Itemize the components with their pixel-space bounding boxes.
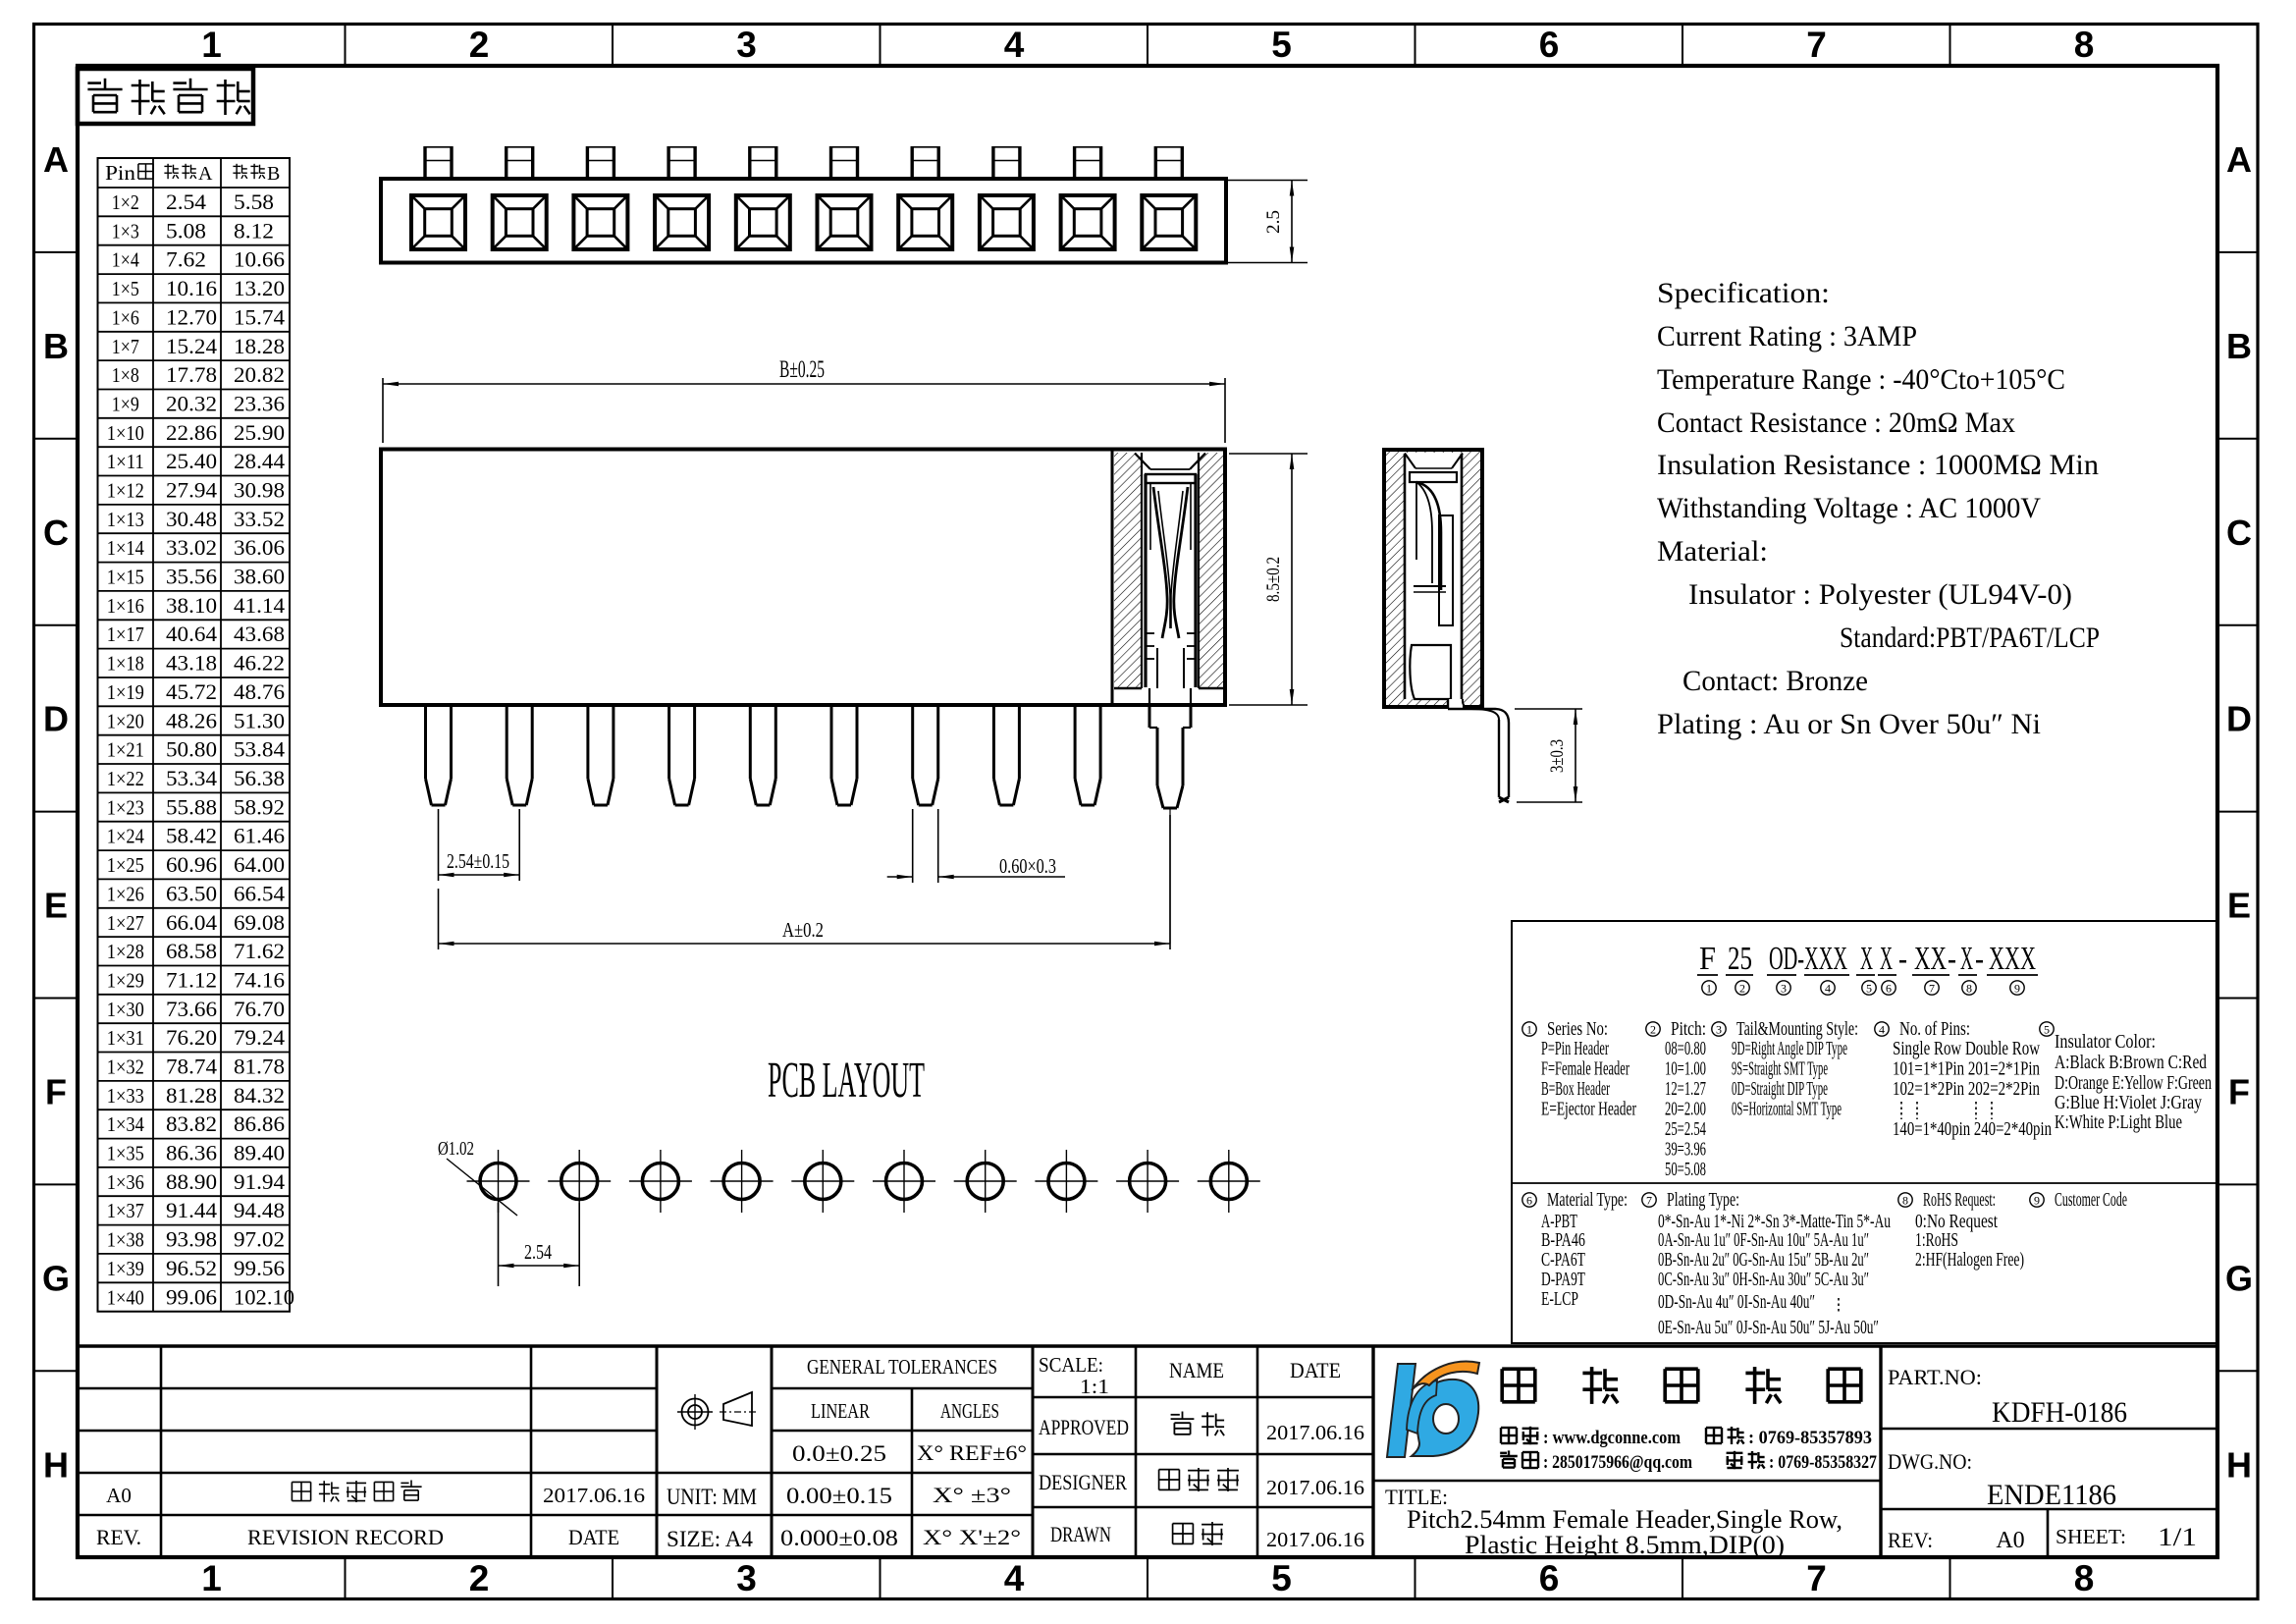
svg-text:B: B	[43, 326, 69, 366]
svg-text:6: 6	[1526, 1193, 1532, 1207]
svg-text:2.54±0.15: 2.54±0.15	[447, 849, 509, 873]
svg-text:KDFH-0186: KDFH-0186	[1992, 1396, 2127, 1429]
svg-text:4: 4	[1004, 25, 1025, 65]
svg-text:0.00±0.15: 0.00±0.15	[786, 1484, 892, 1508]
svg-text:0C-Sn-Au 3u″ 0H-Sn-Au 30u″ 5C: 0C-Sn-Au 3u″ 0H-Sn-Au 30u″ 5C-Au 3u″	[1658, 1270, 1869, 1290]
svg-text:0D-Sn-Au 4u″ 0I-Sn-Au 40u″: 0D-Sn-Au 4u″ 0I-Sn-Au 40u″	[1658, 1292, 1815, 1313]
svg-text:74.16: 74.16	[234, 968, 285, 993]
svg-text:88.90: 88.90	[166, 1169, 217, 1194]
svg-text:1×36: 1×36	[107, 1170, 144, 1194]
svg-text:: 0769-85358327: : 0769-85358327	[1769, 1452, 1877, 1473]
svg-text:DWG.NO:: DWG.NO:	[1888, 1449, 1972, 1474]
svg-text:76.20: 76.20	[166, 1025, 217, 1050]
svg-text:48.26: 48.26	[166, 708, 217, 732]
svg-text:56.38: 56.38	[234, 766, 285, 790]
svg-text:1×8: 1×8	[112, 363, 139, 387]
svg-text:Current Rating : 3AMP: Current Rating : 3AMP	[1657, 320, 1917, 352]
svg-text:B=Box Header: B=Box Header	[1541, 1079, 1610, 1100]
svg-text:1×35: 1×35	[107, 1142, 144, 1165]
svg-text:E=Ejector Header: E=Ejector Header	[1541, 1100, 1636, 1120]
svg-text:63.50: 63.50	[166, 881, 217, 905]
svg-text:1×19: 1×19	[107, 680, 144, 704]
svg-text:1×28: 1×28	[107, 940, 144, 963]
svg-text:Standard:PBT/PA6T/LCP: Standard:PBT/PA6T/LCP	[1840, 622, 2100, 654]
svg-text:50=5.08: 50=5.08	[1665, 1160, 1706, 1180]
svg-text:0:No Request: 0:No Request	[1915, 1212, 1998, 1232]
svg-text:X° REF±6°: X° REF±6°	[917, 1440, 1027, 1465]
svg-text:23.36: 23.36	[234, 392, 285, 416]
svg-text:1×5: 1×5	[112, 277, 139, 300]
svg-text:55.88: 55.88	[166, 794, 217, 819]
svg-text:D:Orange E:Yellow F:Green: D:Orange E:Yellow F:Green	[2055, 1073, 2212, 1094]
svg-text:A:Black B:Brown C:Red: A:Black B:Brown C:Red	[2055, 1053, 2207, 1073]
svg-text:66.04: 66.04	[166, 910, 217, 935]
svg-text:99.56: 99.56	[234, 1256, 285, 1280]
svg-text:1×12: 1×12	[107, 479, 144, 503]
svg-text:45.72: 45.72	[166, 679, 217, 704]
svg-text:89.40: 89.40	[234, 1141, 285, 1165]
svg-text:58.42: 58.42	[166, 824, 217, 848]
svg-text:Pitch2.54mm Female Header,Sing: Pitch2.54mm Female Header,Single Row,	[1407, 1505, 1842, 1534]
svg-text:Series No:: Series No:	[1547, 1019, 1608, 1040]
svg-text:REVISION RECORD: REVISION RECORD	[247, 1525, 444, 1549]
svg-text:1×2: 1×2	[112, 190, 139, 214]
svg-text:-: -	[1898, 941, 1907, 977]
svg-text:ANGLES: ANGLES	[940, 1399, 999, 1423]
svg-text:93.98: 93.98	[166, 1227, 217, 1252]
svg-text:2: 2	[1739, 981, 1745, 995]
svg-text:E: E	[2227, 886, 2251, 926]
svg-text:H: H	[2226, 1444, 2252, 1485]
svg-text:B: B	[2226, 326, 2252, 366]
svg-text:86.36: 86.36	[166, 1141, 217, 1165]
svg-text:94.48: 94.48	[234, 1198, 285, 1222]
svg-text:Material:: Material:	[1657, 535, 1768, 568]
svg-text:B-PA46: B-PA46	[1541, 1230, 1585, 1251]
svg-text:96.52: 96.52	[166, 1256, 217, 1280]
svg-text:81.78: 81.78	[234, 1055, 285, 1079]
svg-text:10=1.00: 10=1.00	[1665, 1059, 1706, 1080]
svg-text:Plating : Au or Sn Over 50u″ N: Plating : Au or Sn Over 50u″ Ni	[1657, 708, 2041, 740]
svg-text:35.56: 35.56	[166, 565, 217, 589]
svg-text:1×6: 1×6	[112, 305, 139, 329]
svg-text:OD-XXX: OD-XXX	[1769, 941, 1847, 977]
svg-text:3: 3	[1781, 981, 1787, 995]
svg-text:1×26: 1×26	[107, 882, 144, 905]
svg-text:1×18: 1×18	[107, 652, 144, 676]
svg-text:10.66: 10.66	[234, 247, 285, 272]
svg-text:1×15: 1×15	[107, 566, 144, 589]
svg-text:NAME: NAME	[1169, 1358, 1224, 1382]
svg-text:71.62: 71.62	[234, 939, 285, 963]
svg-text:91.94: 91.94	[234, 1169, 285, 1194]
svg-text:1:1: 1:1	[1080, 1375, 1109, 1398]
svg-text:G: G	[2225, 1258, 2253, 1298]
svg-text:3: 3	[736, 25, 757, 65]
svg-text:1:RoHS: 1:RoHS	[1915, 1230, 1958, 1251]
svg-text:1×14: 1×14	[107, 536, 144, 560]
svg-text:SHEET:: SHEET:	[2056, 1525, 2126, 1548]
svg-text:78.74: 78.74	[166, 1055, 217, 1079]
svg-text:28.44: 28.44	[234, 449, 285, 473]
svg-text:5: 5	[2044, 1022, 2050, 1036]
svg-text:6: 6	[1886, 981, 1892, 995]
svg-text:1×38: 1×38	[107, 1228, 144, 1252]
svg-text:DATE: DATE	[1290, 1358, 1341, 1382]
svg-text:30.48: 30.48	[166, 507, 217, 531]
svg-text:B±0.25: B±0.25	[779, 356, 825, 383]
svg-text:20.32: 20.32	[166, 392, 217, 416]
svg-text:0A-Sn-Au 1u″ 0F-Sn-Au 10u″ 5A: 0A-Sn-Au 1u″ 0F-Sn-Au 10u″ 5A-Au 1u″	[1658, 1230, 1869, 1251]
svg-text:08=0.80: 08=0.80	[1665, 1039, 1706, 1059]
svg-text:1×34: 1×34	[107, 1112, 144, 1136]
svg-text:25: 25	[1728, 941, 1752, 977]
svg-text:36.06: 36.06	[234, 535, 285, 560]
svg-text:99.06: 99.06	[166, 1284, 217, 1309]
svg-text:1×27: 1×27	[107, 911, 144, 935]
svg-text:Pin: Pin	[105, 161, 136, 185]
svg-text:0D=Straight DIP Type: 0D=Straight DIP Type	[1732, 1079, 1828, 1100]
svg-text:X: X	[1880, 941, 1893, 977]
svg-text:53.84: 53.84	[234, 737, 285, 762]
svg-text:X: X	[1860, 941, 1873, 977]
svg-text:1×11: 1×11	[107, 450, 144, 473]
svg-text:D-PA9T: D-PA9T	[1541, 1270, 1585, 1290]
svg-text:1: 1	[1526, 1022, 1532, 1036]
svg-text:1×29: 1×29	[107, 969, 144, 993]
svg-text:No. of Pins:: No. of Pins:	[1899, 1019, 1970, 1040]
svg-text:8: 8	[1966, 981, 1972, 995]
svg-text:A: A	[2226, 139, 2252, 180]
svg-text:Contact: Bronze: Contact: Bronze	[1682, 665, 1868, 697]
svg-text:8: 8	[1902, 1193, 1908, 1207]
svg-text:: www.dgconne.com: : www.dgconne.com	[1543, 1428, 1681, 1448]
svg-text:2017.06.16: 2017.06.16	[1266, 1476, 1364, 1499]
svg-text:Insulation Resistance : 1000MΩ: Insulation Resistance : 1000MΩ Min	[1657, 449, 2099, 481]
svg-text:101=1*1Pin 201=2*1Pin: 101=1*1Pin 201=2*1Pin	[1893, 1059, 2040, 1080]
svg-text:0S=Horizontal SMT Type: 0S=Horizontal SMT Type	[1732, 1100, 1842, 1120]
svg-text:18.28: 18.28	[234, 334, 285, 358]
svg-text:5: 5	[1271, 25, 1292, 65]
svg-text:50.80: 50.80	[166, 737, 217, 762]
svg-text:64.00: 64.00	[234, 852, 285, 877]
svg-text:40.64: 40.64	[166, 622, 217, 646]
svg-text:69.08: 69.08	[234, 910, 285, 935]
svg-text:6: 6	[1539, 25, 1560, 65]
svg-text:17.78: 17.78	[166, 362, 217, 387]
svg-text:Ø1.02: Ø1.02	[438, 1138, 474, 1160]
svg-text:Single Row Double Row: Single Row Double Row	[1893, 1039, 2040, 1059]
svg-text:1×23: 1×23	[107, 795, 144, 819]
svg-text:58.92: 58.92	[234, 794, 285, 819]
svg-text:D: D	[2226, 699, 2252, 739]
svg-text:X: X	[1960, 941, 1973, 977]
svg-text:27.94: 27.94	[166, 478, 217, 503]
svg-text:1×25: 1×25	[107, 853, 144, 877]
svg-text:2: 2	[469, 25, 490, 65]
svg-text:9: 9	[2034, 1193, 2040, 1207]
svg-text:1×10: 1×10	[107, 421, 144, 445]
svg-text:1: 1	[201, 25, 222, 65]
svg-text:1: 1	[1706, 981, 1712, 995]
svg-text:2: 2	[1650, 1022, 1656, 1036]
svg-text:UNIT: MM: UNIT: MM	[667, 1485, 757, 1509]
svg-text:DRAWN: DRAWN	[1050, 1522, 1111, 1546]
svg-text:REV.: REV.	[96, 1525, 141, 1549]
svg-text:79.24: 79.24	[234, 1025, 285, 1050]
svg-text:5.08: 5.08	[166, 218, 206, 243]
svg-text:51.30: 51.30	[234, 708, 285, 732]
svg-text:Temperature Range : -40°Cto+10: Temperature Range : -40°Cto+105°C	[1657, 363, 2065, 396]
svg-text:: 0769-85357893: : 0769-85357893	[1748, 1428, 1872, 1448]
svg-text:F: F	[1699, 941, 1716, 977]
svg-text:A0: A0	[106, 1484, 132, 1507]
svg-text:C: C	[2226, 513, 2252, 553]
svg-text:D: D	[43, 699, 69, 739]
svg-text:A: A	[198, 163, 213, 185]
svg-text:3±0.3: 3±0.3	[1547, 739, 1568, 773]
svg-text:39=3.96: 39=3.96	[1665, 1140, 1706, 1161]
svg-text:9S=Straight SMT Type: 9S=Straight SMT Type	[1732, 1059, 1828, 1080]
svg-text:A-PBT: A-PBT	[1541, 1212, 1577, 1232]
svg-text:G: G	[42, 1258, 70, 1298]
svg-text:1×32: 1×32	[107, 1056, 144, 1079]
svg-text:1×33: 1×33	[107, 1084, 144, 1108]
svg-text:-: -	[1975, 941, 1984, 977]
svg-text:1×24: 1×24	[107, 825, 144, 848]
svg-text:60.96: 60.96	[166, 852, 217, 877]
svg-text:GENERAL TOLERANCES: GENERAL TOLERANCES	[807, 1355, 997, 1379]
svg-text:1×13: 1×13	[107, 508, 144, 531]
svg-text:68.58: 68.58	[166, 939, 217, 963]
svg-text:1×4: 1×4	[112, 248, 139, 272]
svg-text:61.46: 61.46	[234, 824, 285, 848]
svg-text:5: 5	[1271, 1558, 1292, 1598]
svg-text:43.68: 43.68	[234, 622, 285, 646]
svg-text:22.86: 22.86	[166, 420, 217, 445]
svg-text:8: 8	[2074, 25, 2095, 65]
svg-text:76.70: 76.70	[234, 997, 285, 1021]
svg-text:E: E	[44, 886, 68, 926]
svg-text:53.34: 53.34	[166, 766, 217, 790]
svg-text:71.12: 71.12	[166, 968, 217, 993]
svg-text:Plating Type:: Plating Type:	[1667, 1190, 1739, 1211]
svg-text:5.58: 5.58	[234, 189, 274, 214]
svg-text:1×37: 1×37	[107, 1199, 144, 1222]
svg-text:102=1*2Pin 202=2*2Pin: 102=1*2Pin 202=2*2Pin	[1893, 1079, 2040, 1100]
svg-text:Tail&Mounting Style:: Tail&Mounting Style:	[1736, 1019, 1858, 1040]
svg-text:XXX: XXX	[1989, 941, 2036, 977]
svg-text:13.20: 13.20	[234, 276, 285, 300]
svg-text:6: 6	[1539, 1558, 1560, 1598]
svg-text:7: 7	[1929, 981, 1935, 995]
svg-text:0*-Sn-Au 1*-Ni 2*-Sn 3*-Matte-: 0*-Sn-Au 1*-Ni 2*-Sn 3*-Matte-Tin 5*-Au	[1658, 1212, 1891, 1232]
svg-text:0E-Sn-Au 5u″ 0J-Sn-Au 50u″ 5J: 0E-Sn-Au 5u″ 0J-Sn-Au 50u″ 5J-Au 50u″	[1658, 1318, 1879, 1338]
svg-text:3: 3	[1716, 1022, 1722, 1036]
svg-text:4: 4	[1879, 1022, 1885, 1036]
svg-text:DATE: DATE	[568, 1525, 619, 1549]
svg-text:2017.06.16: 2017.06.16	[543, 1484, 645, 1507]
svg-text:66.54: 66.54	[234, 881, 285, 905]
svg-text:5: 5	[1866, 981, 1872, 995]
svg-text:12=1.27: 12=1.27	[1665, 1079, 1706, 1100]
svg-text:1×21: 1×21	[107, 738, 144, 762]
svg-text:7: 7	[1646, 1193, 1652, 1207]
svg-text:7: 7	[1806, 1558, 1827, 1598]
svg-text:C: C	[43, 513, 69, 553]
svg-text:8: 8	[2074, 1558, 2095, 1598]
svg-text:K:White P:Light Blue: K:White P:Light Blue	[2055, 1112, 2182, 1133]
svg-text:F: F	[2228, 1072, 2250, 1112]
svg-text:73.66: 73.66	[166, 997, 217, 1021]
svg-text:2:HF(Halogen Free): 2:HF(Halogen Free)	[1915, 1250, 2024, 1271]
svg-text:33.52: 33.52	[234, 507, 285, 531]
svg-text:7: 7	[1806, 25, 1827, 65]
svg-text:2017.06.16: 2017.06.16	[1266, 1421, 1364, 1444]
svg-text:2: 2	[469, 1558, 490, 1598]
svg-text:91.44: 91.44	[166, 1198, 217, 1222]
svg-text:41.14: 41.14	[234, 593, 285, 618]
svg-text:A±0.2: A±0.2	[782, 918, 824, 942]
svg-text:10.16: 10.16	[166, 276, 217, 300]
svg-text:PCB LAYOUT: PCB LAYOUT	[768, 1053, 925, 1109]
svg-text:Insulator : Polyester (UL94V-0: Insulator : Polyester (UL94V-0)	[1688, 578, 2072, 611]
svg-text:2.54: 2.54	[166, 189, 206, 214]
svg-text:0B-Sn-Au 2u″ 0G-Sn-Au 15u″ 5B: 0B-Sn-Au 2u″ 0G-Sn-Au 15u″ 5B-Au 2u″	[1658, 1250, 1869, 1271]
svg-text:83.82: 83.82	[166, 1111, 217, 1136]
svg-text:9D=Right Angle DIP Type: 9D=Right Angle DIP Type	[1732, 1039, 1847, 1059]
svg-text:4: 4	[1004, 1558, 1025, 1598]
svg-text:1×17: 1×17	[107, 623, 144, 646]
svg-text:1×7: 1×7	[112, 335, 139, 358]
svg-text:1: 1	[201, 1558, 222, 1598]
svg-text:X° X'±2°: X° X'±2°	[923, 1525, 1021, 1549]
svg-text:9: 9	[2014, 981, 2020, 995]
svg-text:Plastic Height 8.5mm,DIP(0): Plastic Height 8.5mm,DIP(0)	[1465, 1531, 1785, 1559]
svg-text:Withstanding Voltage : AC 1000: Withstanding Voltage : AC 1000V	[1657, 492, 2041, 524]
svg-text:Pitch:: Pitch:	[1671, 1019, 1706, 1040]
svg-text:4: 4	[1825, 981, 1831, 995]
svg-text:G:Blue H:Violet J:Gray: G:Blue H:Violet J:Gray	[2055, 1093, 2202, 1113]
svg-text:2.54: 2.54	[524, 1240, 552, 1264]
svg-text:A: A	[43, 139, 69, 180]
svg-text:46.22: 46.22	[234, 651, 285, 676]
svg-text:X° ±3°: X° ±3°	[933, 1483, 1011, 1507]
svg-text:38.10: 38.10	[166, 593, 217, 618]
svg-text:DESIGNER: DESIGNER	[1039, 1470, 1127, 1494]
svg-text:15.74: 15.74	[234, 304, 285, 329]
svg-text:Customer Code: Customer Code	[2055, 1190, 2127, 1211]
svg-text:1/1: 1/1	[2158, 1523, 2197, 1551]
svg-text:1×30: 1×30	[107, 998, 144, 1021]
svg-text:RoHS Request:: RoHS Request:	[1923, 1190, 1996, 1211]
svg-text:F=Female Header: F=Female Header	[1541, 1059, 1629, 1080]
svg-text:15.24: 15.24	[166, 334, 217, 358]
svg-text:86.86: 86.86	[234, 1111, 285, 1136]
svg-text:20=2.00: 20=2.00	[1665, 1100, 1706, 1120]
svg-text:C-PA6T: C-PA6T	[1541, 1250, 1585, 1271]
svg-text:140=1*40pin 240=2*40pin: 140=1*40pin 240=2*40pin	[1893, 1119, 2052, 1140]
svg-text:3: 3	[736, 1558, 757, 1598]
svg-text:25.90: 25.90	[234, 420, 285, 445]
svg-text:1×39: 1×39	[107, 1257, 144, 1280]
svg-text:1×9: 1×9	[112, 393, 139, 416]
svg-text:97.02: 97.02	[234, 1227, 285, 1252]
svg-text:Insulator Color:: Insulator Color:	[2055, 1032, 2156, 1053]
svg-text:XX: XX	[1914, 941, 1947, 977]
svg-text:25=2.54: 25=2.54	[1665, 1119, 1706, 1140]
svg-text:33.02: 33.02	[166, 535, 217, 560]
svg-text:0.000±0.08: 0.000±0.08	[780, 1526, 898, 1550]
svg-text:E-LCP: E-LCP	[1541, 1289, 1578, 1310]
svg-text:1×22: 1×22	[107, 767, 144, 790]
svg-text:0.0±0.25: 0.0±0.25	[792, 1441, 886, 1466]
svg-text:LINEAR: LINEAR	[811, 1399, 870, 1423]
svg-text:1×3: 1×3	[112, 219, 139, 243]
svg-text:A0: A0	[1996, 1528, 2024, 1553]
svg-text:H: H	[43, 1444, 69, 1485]
svg-text:Specification:: Specification:	[1657, 277, 1830, 309]
svg-text:81.28: 81.28	[166, 1083, 217, 1108]
svg-text:7.62: 7.62	[166, 247, 206, 272]
svg-text:2017.06.16: 2017.06.16	[1266, 1528, 1364, 1551]
svg-text:P=Pin Header: P=Pin Header	[1541, 1039, 1609, 1059]
svg-text:SCALE:: SCALE:	[1039, 1353, 1103, 1377]
svg-text:102.10: 102.10	[234, 1284, 294, 1309]
svg-text:8.5±0.2: 8.5±0.2	[1263, 557, 1284, 602]
svg-text:43.18: 43.18	[166, 651, 217, 676]
svg-text:1×20: 1×20	[107, 709, 144, 732]
svg-text:Material Type:: Material Type:	[1547, 1190, 1628, 1211]
svg-text:2.5: 2.5	[1263, 210, 1284, 234]
svg-text:Contact Resistance : 20mΩ Max: Contact Resistance : 20mΩ Max	[1657, 406, 2015, 439]
svg-text:48.76: 48.76	[234, 679, 285, 704]
svg-text:84.32: 84.32	[234, 1083, 285, 1108]
svg-text:0.60×0.3: 0.60×0.3	[999, 854, 1056, 878]
svg-text:SIZE: A4: SIZE: A4	[667, 1527, 754, 1551]
svg-text:PART.NO:: PART.NO:	[1888, 1365, 1982, 1389]
svg-text:: 2850175966@qq.com: : 2850175966@qq.com	[1543, 1452, 1692, 1473]
svg-text:8.12: 8.12	[234, 218, 274, 243]
svg-text:30.98: 30.98	[234, 478, 285, 503]
svg-text:12.70: 12.70	[166, 304, 217, 329]
svg-text:APPROVED: APPROVED	[1039, 1415, 1129, 1439]
svg-text:ENDE1186: ENDE1186	[1987, 1479, 2116, 1511]
svg-text:B: B	[267, 163, 280, 185]
svg-text:1×31: 1×31	[107, 1026, 144, 1050]
svg-text:1×40: 1×40	[107, 1285, 144, 1309]
svg-text:38.60: 38.60	[234, 565, 285, 589]
svg-text:20.82: 20.82	[234, 362, 285, 387]
svg-text:1×16: 1×16	[107, 594, 144, 618]
svg-text:REV:: REV:	[1888, 1528, 1933, 1552]
svg-text:F: F	[45, 1072, 67, 1112]
svg-text:25.40: 25.40	[166, 449, 217, 473]
svg-text:-: -	[1948, 941, 1956, 977]
